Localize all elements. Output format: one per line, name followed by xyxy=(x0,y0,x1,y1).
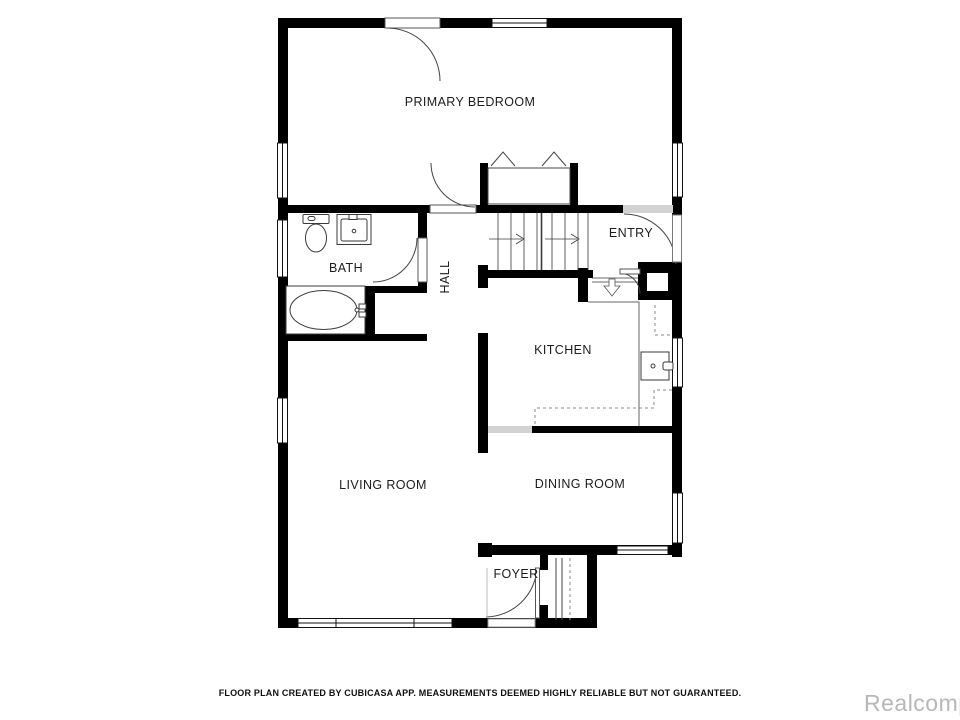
footer-disclaimer: FLOOR PLAN CREATED BY CUBICASA APP. MEAS… xyxy=(0,688,960,698)
counter-edge-line xyxy=(588,302,639,426)
room-label-dining-room: DINING ROOM xyxy=(505,477,655,491)
door-arc-bath xyxy=(373,238,417,282)
opening-entry-door xyxy=(623,205,673,213)
window-bedroom-left xyxy=(278,143,288,198)
floor-plan-page: PRIMARY BEDROOM BATH HALL ENTRY KITCHEN … xyxy=(0,0,960,720)
wall-foyer-corner xyxy=(478,543,492,557)
window-living-bottom-band xyxy=(298,619,452,628)
bathroom-sink-icon xyxy=(337,215,371,245)
window-bath-left xyxy=(278,220,288,277)
upper-cabinet-dashed-bottom xyxy=(535,390,672,424)
closet-hanger-chevron-left xyxy=(491,152,515,166)
kitchen-sink-icon xyxy=(641,352,673,380)
wall-living-kitchen xyxy=(478,333,488,453)
room-label-kitchen: KITCHEN xyxy=(513,343,613,357)
opening-front-door xyxy=(488,619,535,627)
window-dining-right xyxy=(673,493,683,543)
wall-closet-stub-left xyxy=(480,163,488,206)
realcomp-watermark: Realcomp xyxy=(864,690,960,717)
wall-foyer-right-lower xyxy=(540,605,548,620)
closet-hanger-chevron-right xyxy=(542,152,566,166)
window-bedroom-top xyxy=(492,19,547,28)
door-leaf-bath xyxy=(418,238,427,282)
wall-bedroom-south xyxy=(280,205,682,213)
stair-up-arrow-1 xyxy=(489,234,524,244)
door-arc-bedroom-exterior xyxy=(387,28,440,81)
wall-stairs-bottom xyxy=(482,270,593,278)
wall-exterior-top xyxy=(278,18,682,28)
closet-shelf xyxy=(488,168,570,204)
kitchen-counters xyxy=(535,302,673,426)
door-arc-bedroom-hall xyxy=(431,163,475,207)
wall-openings xyxy=(385,18,673,627)
wall-basement-stair-left xyxy=(578,268,588,302)
window-bedroom-right xyxy=(673,143,683,197)
wall-closet-stub-right xyxy=(570,163,578,206)
room-label-hall: HALL xyxy=(438,237,452,317)
window-living-left xyxy=(278,398,288,443)
room-label-living-room: LIVING ROOM xyxy=(308,478,458,492)
door-leaf-basement xyxy=(620,269,640,274)
upper-cabinet-dashed-top xyxy=(655,305,672,335)
room-label-primary-bedroom: PRIMARY BEDROOM xyxy=(370,95,570,109)
stair-down-arrow-icon xyxy=(604,279,620,296)
doors xyxy=(373,28,682,618)
chimney-inner xyxy=(647,273,668,291)
window-kitchen-right xyxy=(673,338,683,387)
toilet-icon xyxy=(303,215,329,253)
opening-bedroom-exterior-door xyxy=(385,18,440,28)
wall-living-top xyxy=(283,334,427,341)
wall-kitchen-dining xyxy=(532,426,673,433)
bedroom-closet xyxy=(488,152,570,204)
bathtub-icon xyxy=(286,286,366,334)
window-dining-bottom xyxy=(617,546,668,555)
room-label-bath: BATH xyxy=(296,261,396,275)
room-label-foyer: FOYER xyxy=(466,567,566,581)
opening-kitchen-dining xyxy=(488,426,532,433)
wall-porch-right xyxy=(587,553,597,628)
stair-up-arrow-2 xyxy=(545,234,579,244)
door-arc-basement xyxy=(620,273,640,294)
room-label-entry: ENTRY xyxy=(581,226,681,240)
